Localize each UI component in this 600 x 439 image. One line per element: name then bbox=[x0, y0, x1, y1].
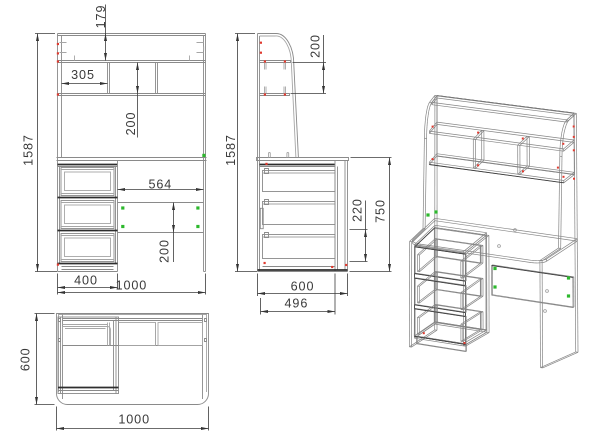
svg-text:200: 200 bbox=[124, 112, 138, 136]
svg-text:1000: 1000 bbox=[116, 279, 148, 293]
svg-text:750: 750 bbox=[373, 199, 387, 223]
svg-text:400: 400 bbox=[74, 274, 98, 288]
svg-text:1587: 1587 bbox=[21, 134, 35, 166]
svg-text:200: 200 bbox=[308, 34, 322, 58]
svg-text:305: 305 bbox=[71, 68, 95, 82]
svg-text:600: 600 bbox=[19, 347, 33, 371]
svg-text:600: 600 bbox=[291, 279, 315, 293]
svg-text:179: 179 bbox=[94, 5, 108, 29]
svg-text:220: 220 bbox=[351, 198, 365, 222]
svg-text:1000: 1000 bbox=[118, 413, 150, 427]
svg-text:200: 200 bbox=[157, 239, 171, 263]
svg-text:1587: 1587 bbox=[224, 134, 238, 166]
svg-text:564: 564 bbox=[148, 178, 172, 192]
svg-text:496: 496 bbox=[285, 297, 309, 311]
